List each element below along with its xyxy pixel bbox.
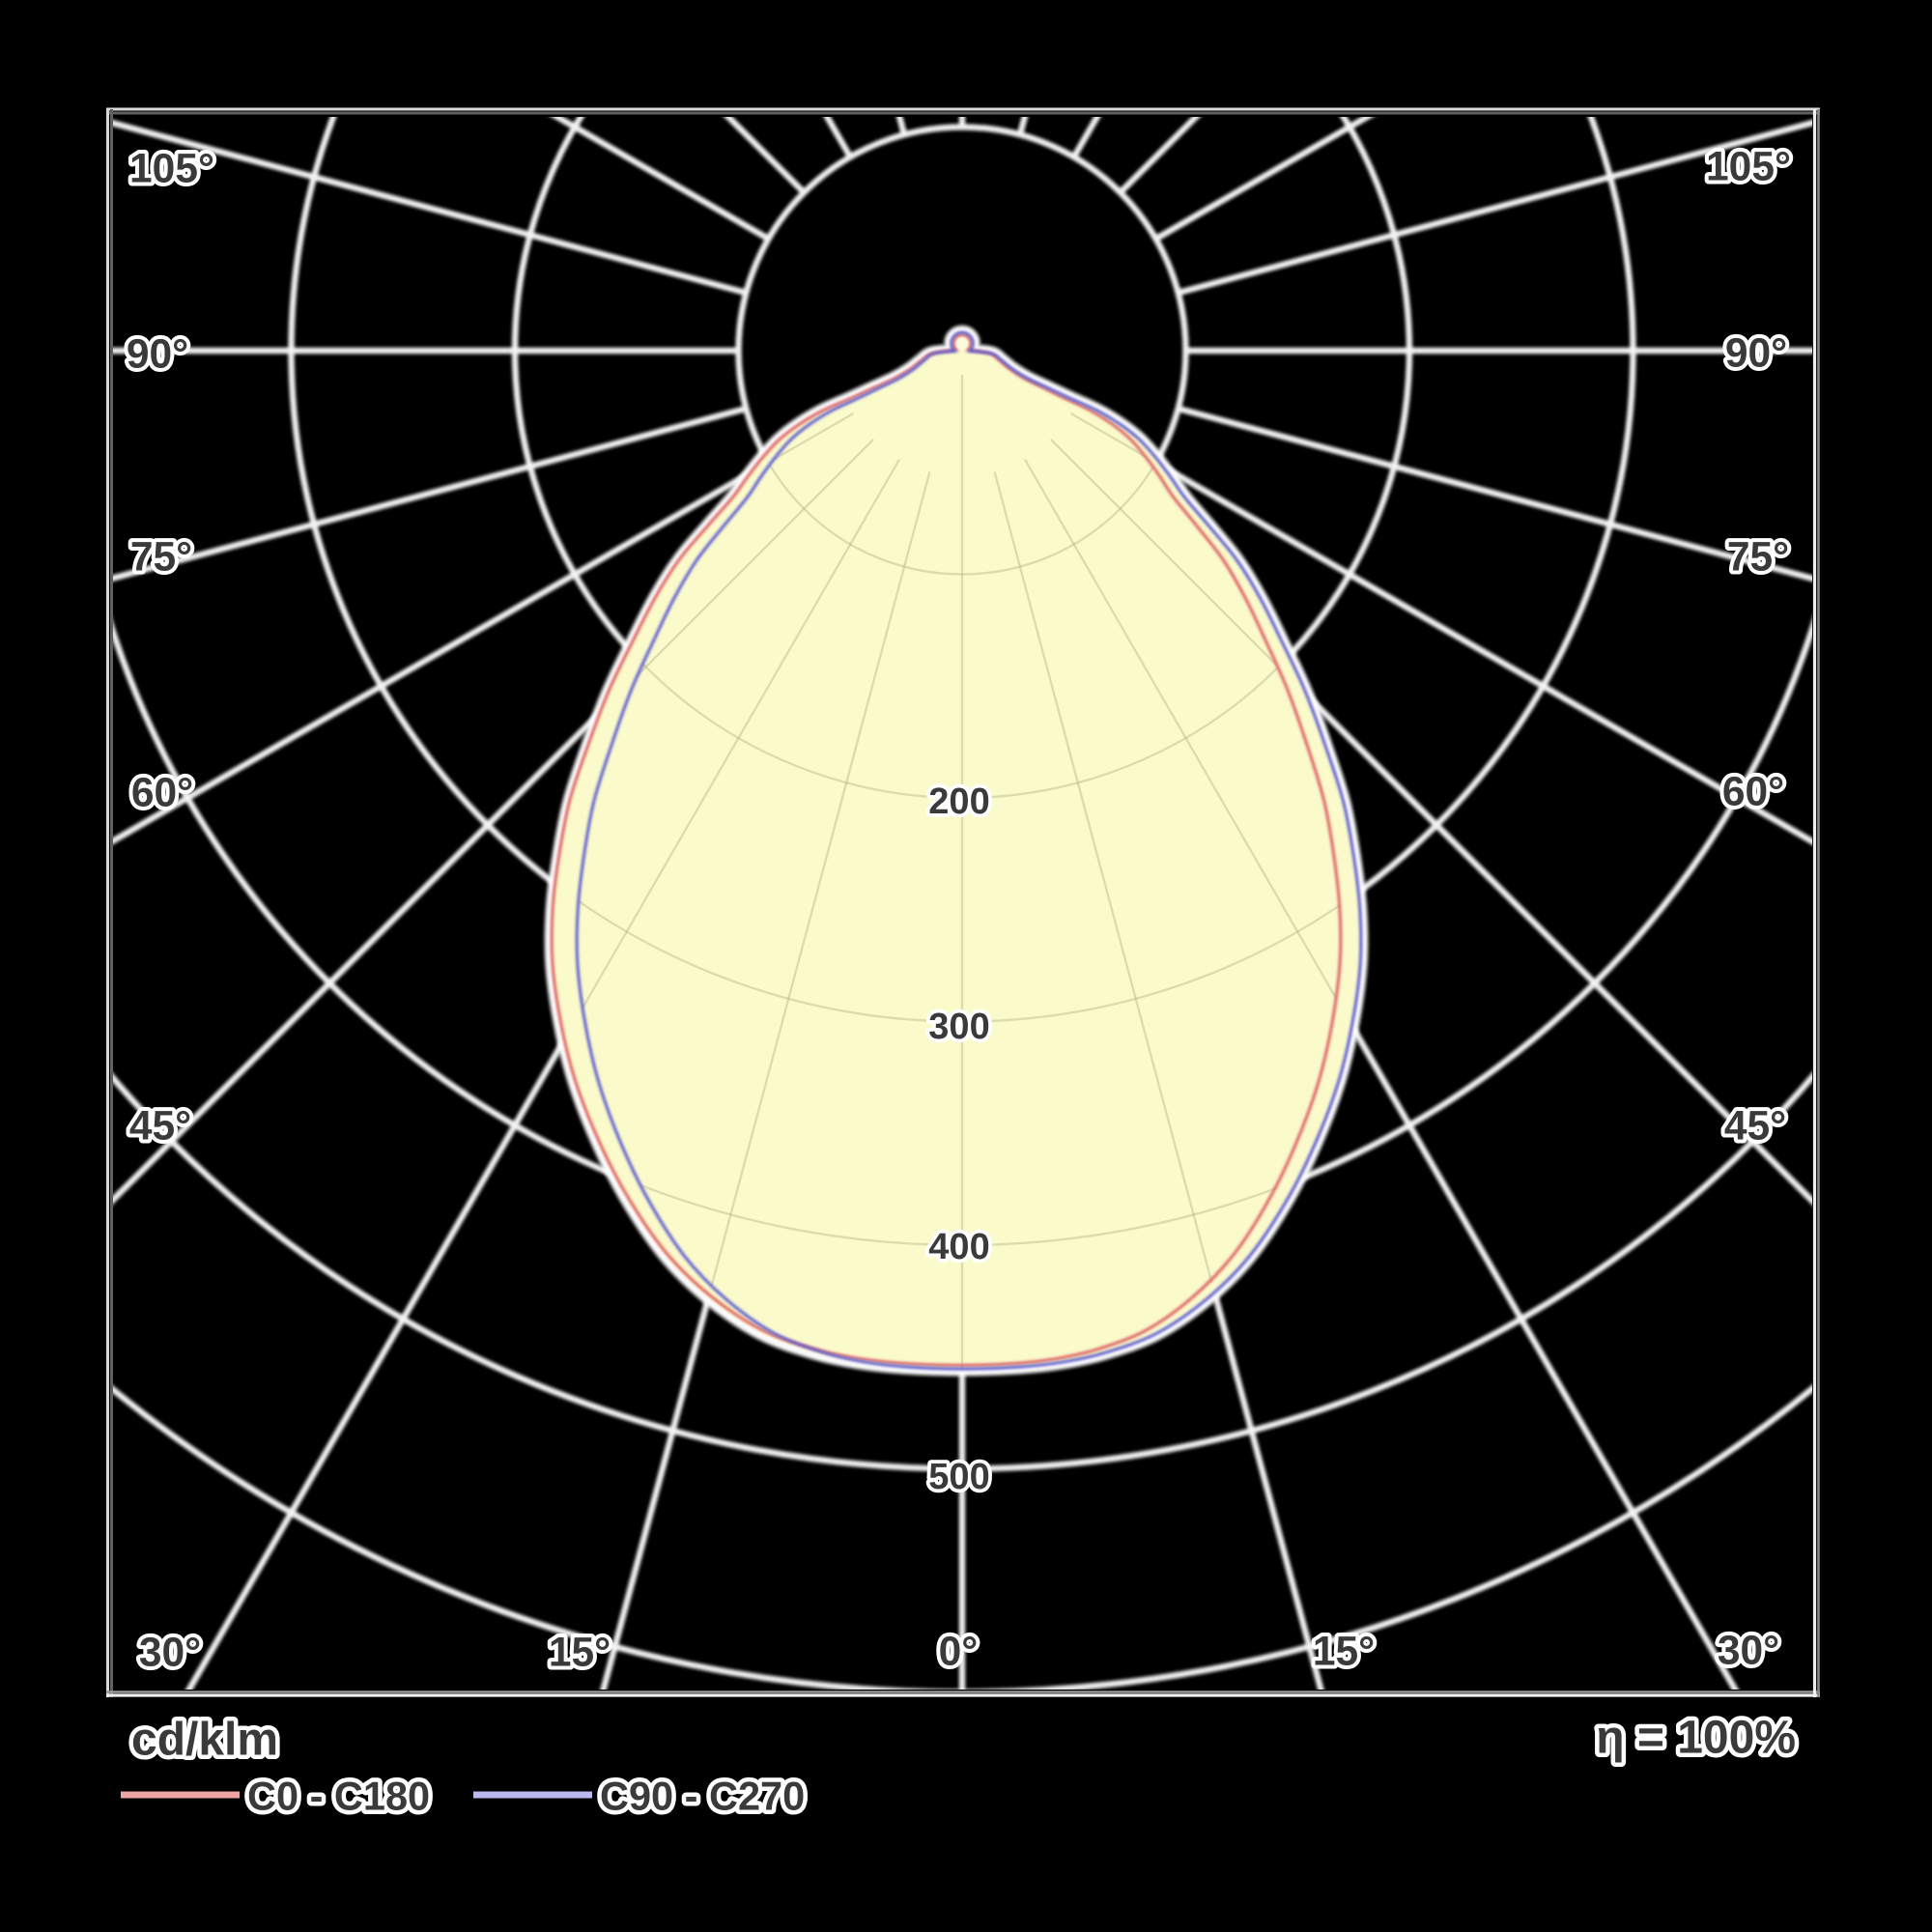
svg-text:90°: 90°: [127, 332, 188, 378]
svg-text:30°: 30°: [1718, 1629, 1779, 1674]
svg-text:15°: 15°: [1313, 1630, 1375, 1675]
svg-text:90°: 90°: [1725, 331, 1787, 377]
svg-text:75°: 75°: [1727, 535, 1789, 581]
svg-text:C90 - C270: C90 - C270: [600, 1774, 805, 1819]
svg-text:500: 500: [928, 1457, 989, 1497]
svg-text:15°: 15°: [549, 1631, 611, 1676]
svg-text:300: 300: [928, 1007, 989, 1047]
svg-text:400: 400: [928, 1227, 989, 1267]
svg-text:30°: 30°: [139, 1631, 201, 1676]
svg-text:cd/klm: cd/klm: [131, 1715, 278, 1766]
svg-text:105°: 105°: [1706, 145, 1791, 190]
svg-text:C0 - C180: C0 - C180: [247, 1774, 430, 1819]
svg-text:45°: 45°: [1724, 1104, 1786, 1150]
svg-text:60°: 60°: [1722, 770, 1784, 815]
svg-text:η = 100%: η = 100%: [1596, 1713, 1796, 1764]
svg-text:60°: 60°: [131, 771, 193, 816]
svg-text:105°: 105°: [129, 147, 214, 192]
svg-text:45°: 45°: [129, 1104, 191, 1150]
svg-text:75°: 75°: [130, 535, 192, 581]
svg-text:200: 200: [928, 781, 989, 822]
svg-text:0°: 0°: [939, 1630, 979, 1675]
